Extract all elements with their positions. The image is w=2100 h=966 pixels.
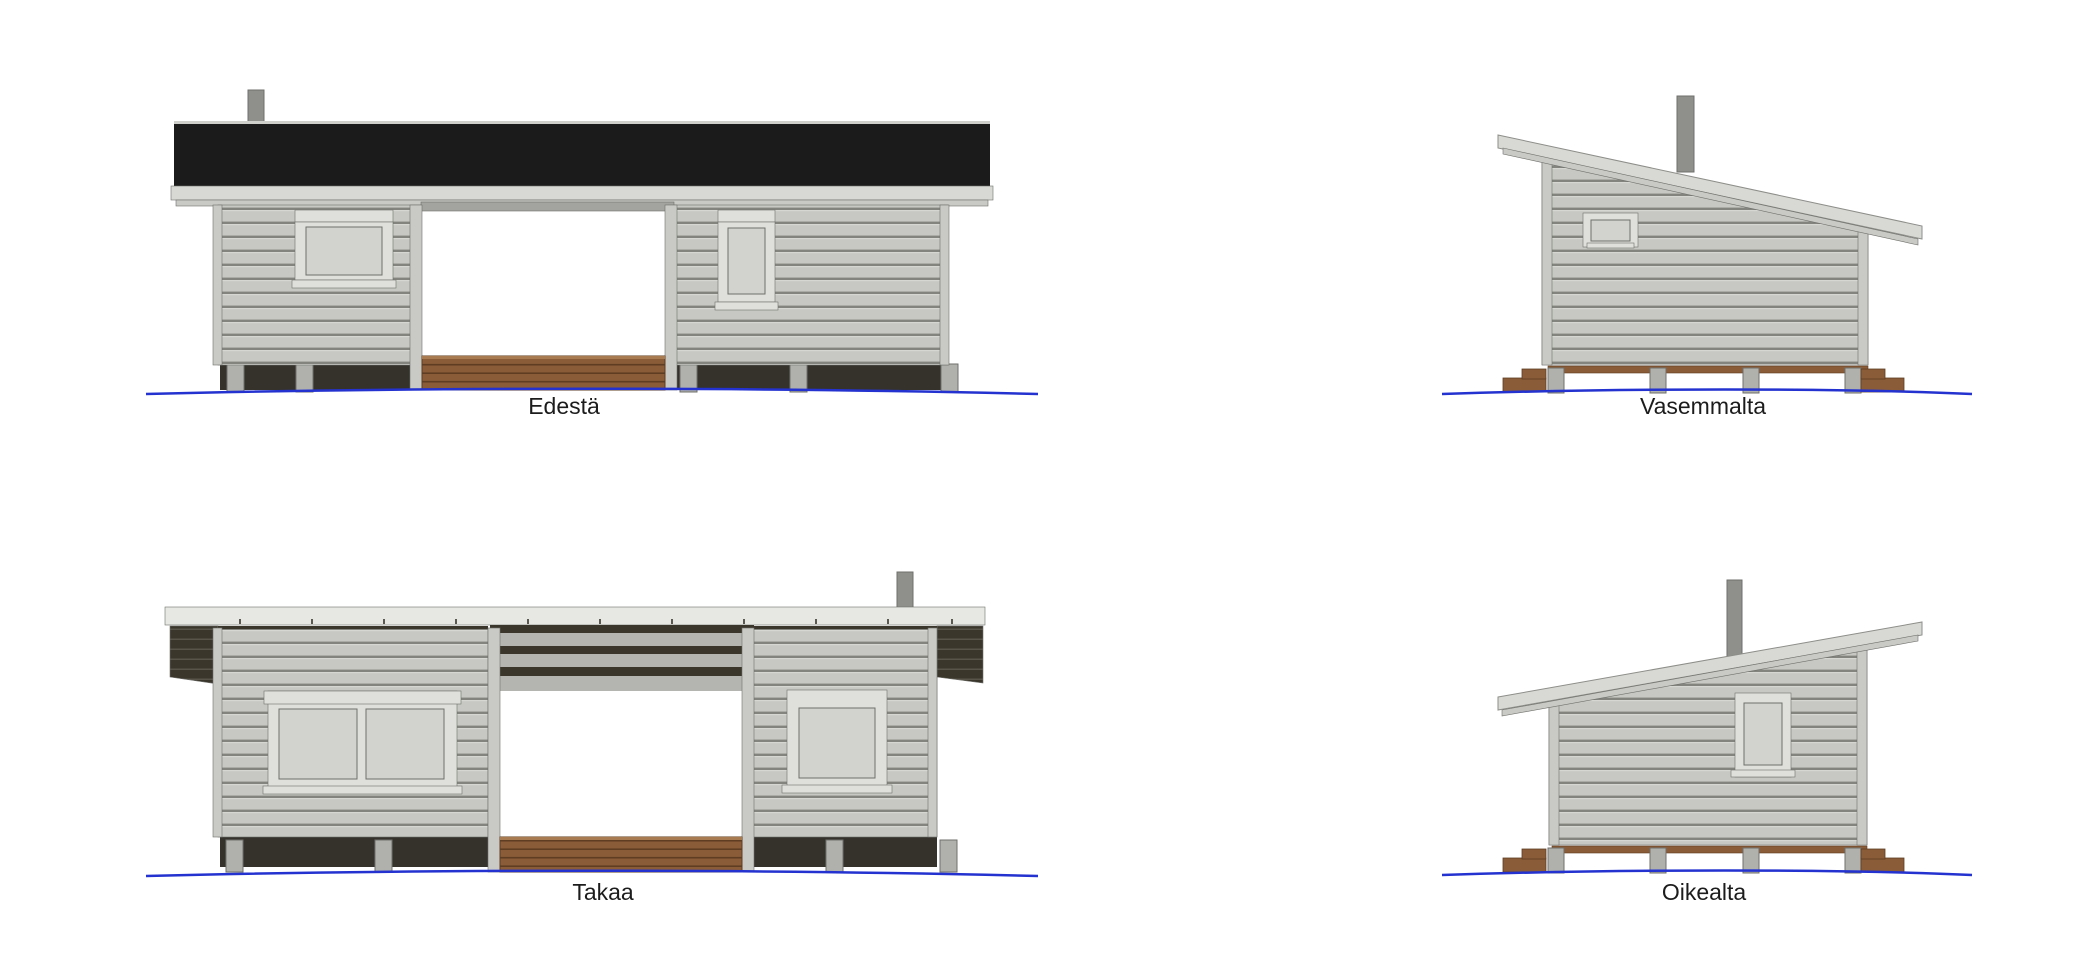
porch-roof-beams [490,625,754,691]
corner-trim-left [1542,160,1552,365]
window-single-right [782,690,892,793]
wall-right [674,205,948,365]
steps-left [1503,369,1546,392]
corner-trim-left [213,628,222,837]
corner-trim-right [928,628,937,837]
corner-trim-right [1858,231,1868,365]
steps-right [1861,369,1904,392]
roof-fascia [171,186,993,200]
corner-trim-right [940,205,949,365]
wall-top-shadow-left [218,626,488,629]
label-front-view: Edestä [528,393,600,419]
corner-trim-left [213,205,222,365]
view-right-elevation: Oikealta [1442,580,1972,905]
elevations-drawing: Edestä Vasemmalta [0,0,2100,966]
porch-post-left [488,628,500,872]
window-narrow-right [715,210,778,310]
rim-beam [1548,366,1868,373]
elevation-sheet: Edestä Vasemmalta [0,0,2100,966]
steps-right [1861,849,1904,872]
window-single [1731,693,1795,777]
porch-deck [422,356,665,390]
porch-post-left [410,205,422,390]
label-back-view: Takaa [572,879,634,905]
window-left [292,210,396,288]
wall-top-shadow-right [753,626,937,629]
roof-underside-right [937,626,983,683]
chimney [897,572,913,609]
porch-opening-header [421,202,674,211]
roof-underside-left [170,626,218,684]
view-left-elevation: Vasemmalta [1442,96,1972,419]
ground-line [146,871,1038,876]
label-left-view: Vasemmalta [1640,393,1766,419]
view-back-elevation: Takaa [146,572,1038,905]
corner-trim-right [1857,647,1867,845]
roof-black-band [174,124,990,186]
steps-left [1503,849,1546,872]
chimney [1677,96,1694,172]
porch-deck [500,837,742,872]
porch-post-right [665,205,677,390]
label-right-view: Oikealta [1662,879,1747,905]
porch-post-right [742,628,754,872]
vent-window [1583,213,1638,248]
corner-trim-left [1549,701,1559,845]
window-double-left [263,691,462,794]
chimney [1727,580,1742,659]
view-front-elevation: Edestä [146,90,1038,419]
rim-beam [1552,846,1867,853]
chimney [248,90,264,126]
roof-fascia-white [165,607,985,625]
